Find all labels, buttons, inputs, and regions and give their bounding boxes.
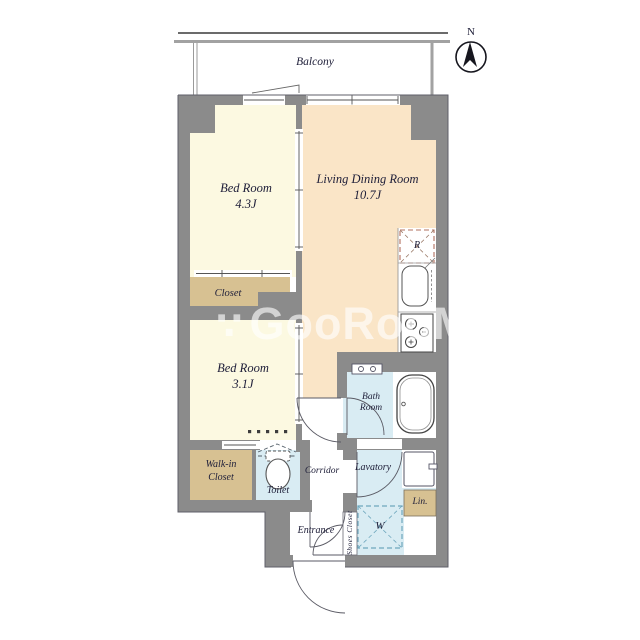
wall-bed1-ldk-top [296,105,302,129]
compass-n-label: N [463,25,479,39]
window-bedroom1-gap [243,95,285,105]
bath-label: Bath Room [350,392,392,414]
linen-lower-area [404,516,436,555]
bedroom1-size: 4.3J [193,196,299,212]
toilet-label: Toilet [253,484,303,497]
window-ldk-gap [306,95,400,105]
bathtub-platform [393,372,436,438]
watermark-icon: ∵ [216,306,243,348]
bedroom2-label: Bed Room 3.1J [190,360,296,393]
walkin-line2: Closet [192,471,250,484]
wall-lavatory-corridor-top [343,450,357,460]
room-ldk-floor-strip [302,352,337,398]
watermark-text: GooRooM [249,298,471,349]
washer-label: W [368,519,392,533]
bedroom1-label: Bed Room 4.3J [193,180,299,213]
ldk-label: Living Dining Room 10.7J [295,171,440,204]
entrance-door-gap [293,555,345,567]
walkin-label: Walk-in Closet [192,458,250,484]
bedroom2-name: Bed Room [190,360,296,376]
wall-kitchen-bath [337,352,436,372]
bath-line2: Room [350,403,392,414]
balcony-label: Balcony [260,55,370,70]
walkin-line1: Walk-in [192,458,250,471]
floorplan-image: Balcony N Bed Room 4.3J Living Dining Ro… [0,0,640,640]
bath-line1: Bath [350,392,392,403]
watermark: ∵GooRooM [216,298,516,350]
lavatory-door-gap [357,439,402,449]
linen-label: Lin. [404,496,436,508]
walkin-door-gap [222,441,258,449]
shoes-closet-label: Shoes Closet [345,513,355,555]
ldk-name: Living Dining Room [295,171,440,187]
lavatory-label: Lavatory [346,461,400,474]
bedroom2-size: 3.1J [190,376,296,392]
sliding-bed1-closet-gap [194,270,292,277]
ldk-size: 10.7J [295,187,440,203]
toilet-door-gap [258,441,296,449]
compass-icon [456,42,486,72]
entrance-label: Entrance [286,524,346,537]
washstand-area [402,450,436,488]
wall-bath-left-top [337,372,347,398]
bedroom1-name: Bed Room [193,180,299,196]
corridor-label: Corridor [296,465,348,477]
wall-entrance-top [290,500,312,512]
fridge-label: R [407,239,427,252]
